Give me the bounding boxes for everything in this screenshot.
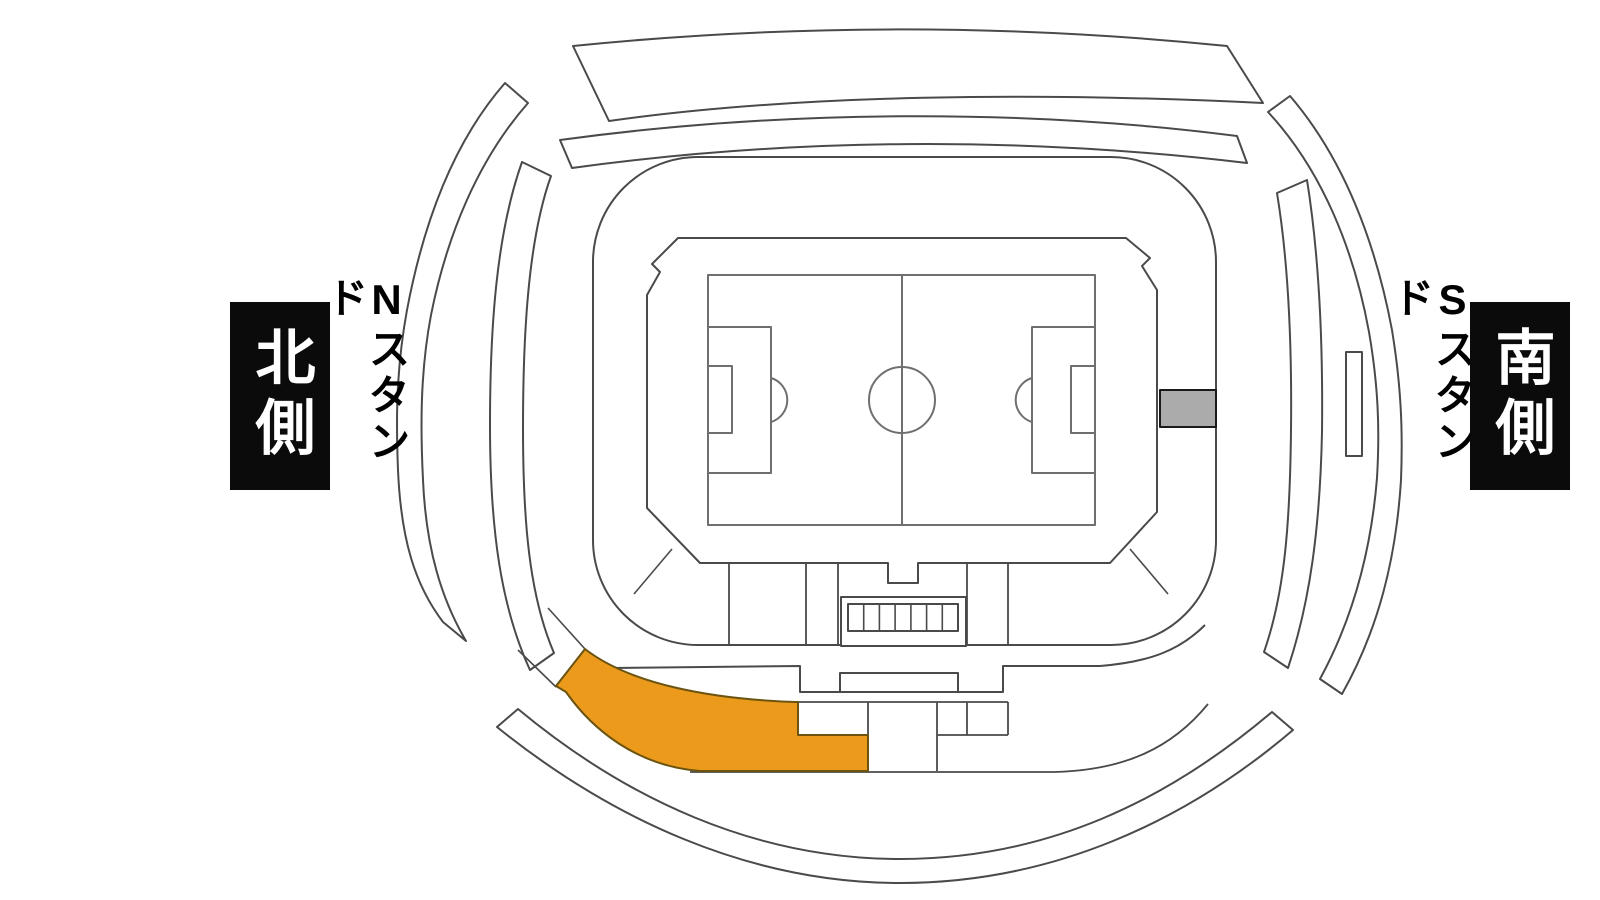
bowl-back-outline bbox=[593, 157, 1216, 645]
left-second-band bbox=[490, 162, 554, 670]
south-side-box: 南側 bbox=[1470, 302, 1570, 490]
entrance-marker bbox=[1160, 390, 1216, 427]
goal-area-right bbox=[1071, 366, 1095, 433]
south-stand-label: Sスタンド bbox=[1402, 276, 1460, 508]
outer-ring-left-segment bbox=[397, 83, 528, 641]
press-box bbox=[840, 673, 958, 692]
goal-area-left bbox=[708, 366, 732, 433]
penalty-area-right bbox=[1032, 327, 1095, 473]
upper-stand-bands bbox=[490, 30, 1322, 671]
top-second-band bbox=[560, 116, 1247, 168]
penalty-arc-left bbox=[771, 378, 787, 422]
outer-ring bbox=[397, 83, 1402, 883]
bench-box bbox=[841, 597, 966, 646]
north-side-label: 北側 bbox=[250, 326, 310, 466]
north-stand-label: Nスタンド bbox=[336, 276, 394, 508]
south-side-label: 南側 bbox=[1490, 326, 1550, 466]
top-stand-band bbox=[573, 30, 1263, 122]
penalty-area-left bbox=[708, 327, 771, 473]
pitch bbox=[708, 275, 1095, 525]
penalty-arc-right bbox=[1016, 378, 1032, 422]
section-divider bbox=[548, 608, 585, 649]
north-side-box: 北側 bbox=[230, 302, 330, 490]
stadium-seat-map-page: 北側 Nスタンド Sスタンド 南側 bbox=[0, 0, 1600, 900]
right-second-band bbox=[1264, 180, 1322, 668]
gate-marker bbox=[1346, 352, 1362, 456]
section-divider bbox=[1130, 549, 1168, 594]
section-divider bbox=[634, 549, 672, 594]
outer-ring-right-segment bbox=[1268, 96, 1402, 694]
